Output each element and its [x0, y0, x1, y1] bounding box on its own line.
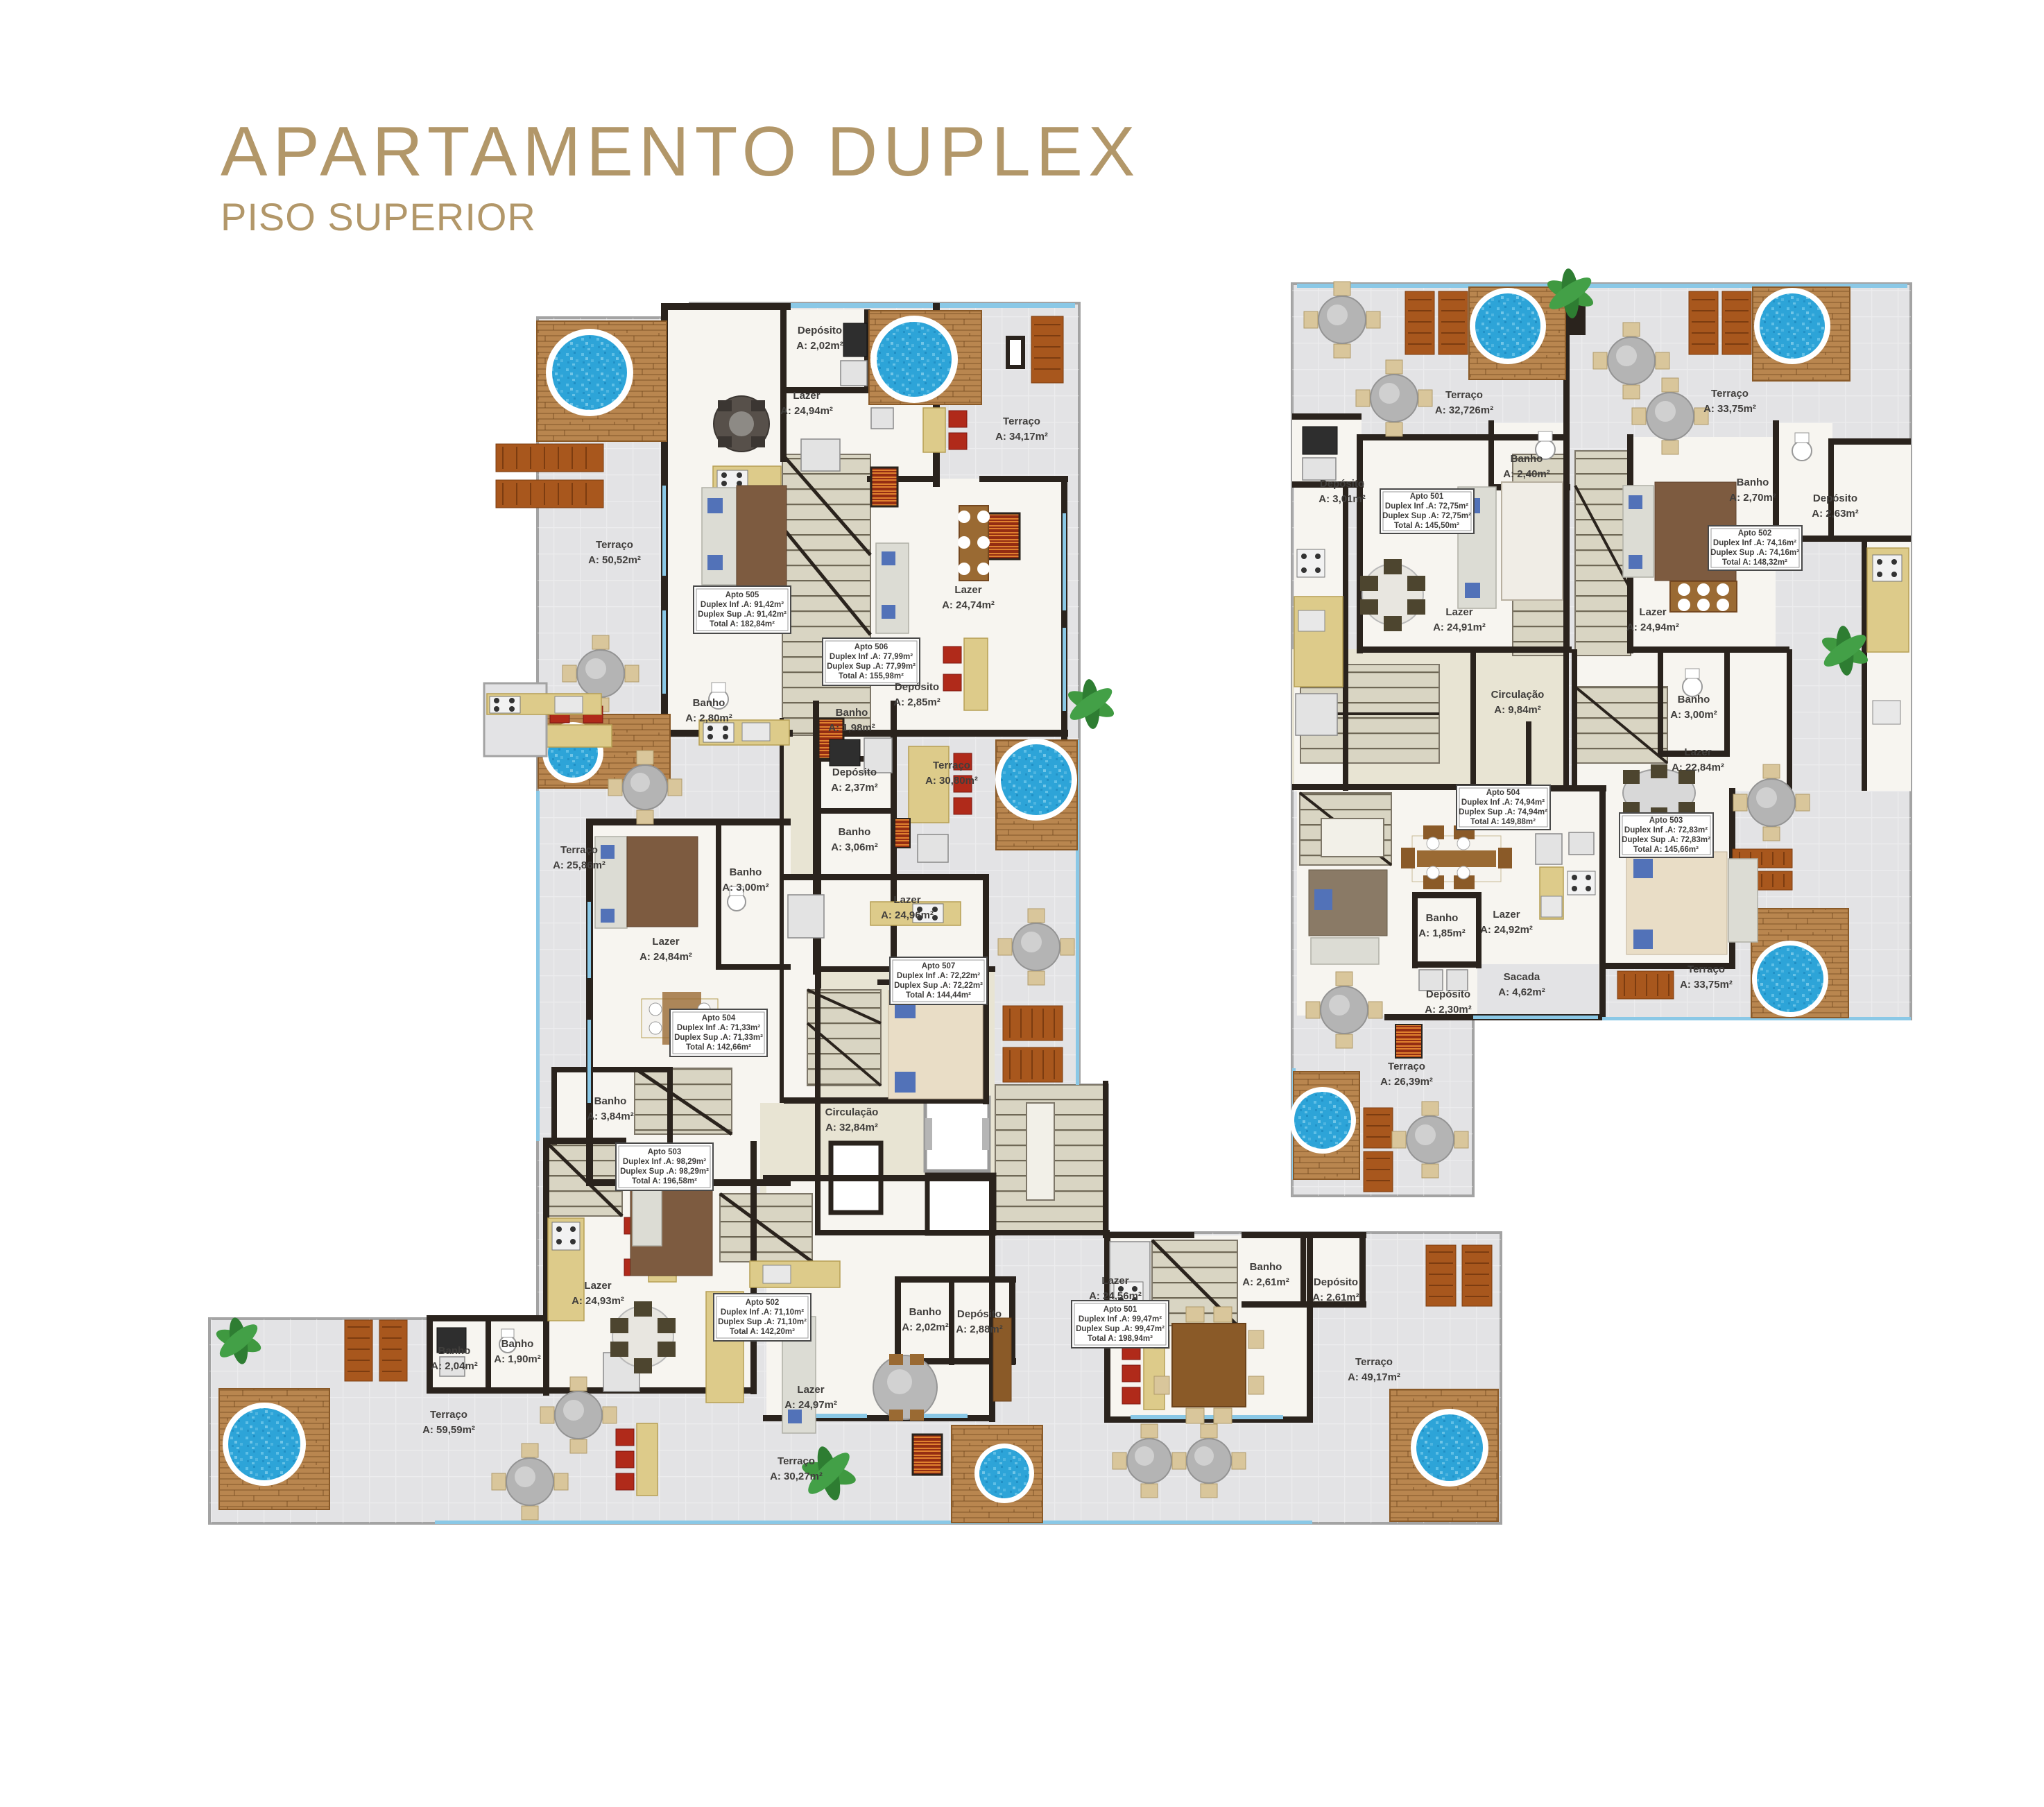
svg-text:Duplex Sup .A: 72,75m²: Duplex Sup .A: 72,75m² — [1382, 512, 1471, 520]
svg-text:Lazer: Lazer — [1684, 746, 1711, 758]
svg-text:Banho: Banho — [1250, 1261, 1282, 1273]
svg-text:Duplex Sup .A: 98,29m²: Duplex Sup .A: 98,29m² — [620, 1167, 709, 1176]
svg-text:Lazer: Lazer — [652, 936, 679, 948]
svg-text:Apto 501: Apto 501 — [1410, 493, 1444, 501]
svg-text:Banho: Banho — [594, 1095, 627, 1107]
svg-text:A: 26,39m²: A: 26,39m² — [1380, 1076, 1433, 1088]
svg-text:Banho: Banho — [438, 1345, 471, 1357]
svg-text:A: 24,97m²: A: 24,97m² — [784, 1399, 837, 1411]
svg-text:A: 30,27m²: A: 30,27m² — [770, 1471, 823, 1482]
svg-text:Banho: Banho — [1426, 912, 1459, 924]
svg-text:Total A: 155,98m²: Total A: 155,98m² — [839, 672, 904, 680]
svg-text:A: 24,96m²: A: 24,96m² — [881, 909, 934, 921]
svg-text:Apto 505: Apto 505 — [725, 591, 759, 599]
svg-text:PISO SUPERIOR: PISO SUPERIOR — [221, 195, 536, 239]
svg-text:Banho: Banho — [836, 707, 868, 719]
svg-text:Depósito: Depósito — [1426, 988, 1470, 1000]
svg-text:Total A: 148,32m²: Total A: 148,32m² — [1722, 558, 1787, 567]
svg-text:A: 2,04m²: A: 2,04m² — [431, 1360, 478, 1372]
svg-text:Duplex Inf .A: 71,33m²: Duplex Inf .A: 71,33m² — [677, 1024, 760, 1032]
svg-text:A: 2,37m²: A: 2,37m² — [831, 782, 878, 794]
svg-text:A: 33,75m²: A: 33,75m² — [1680, 979, 1733, 991]
svg-text:Banho: Banho — [501, 1338, 534, 1350]
svg-text:Lazer: Lazer — [584, 1280, 611, 1292]
svg-text:Duplex Inf .A: 72,22m²: Duplex Inf .A: 72,22m² — [897, 972, 980, 980]
svg-text:Apto 507: Apto 507 — [922, 962, 956, 970]
svg-text:Duplex Sup .A: 99,47m²: Duplex Sup .A: 99,47m² — [1076, 1325, 1165, 1333]
svg-text:A: 9,84m²: A: 9,84m² — [1494, 704, 1541, 716]
svg-text:Duplex Inf .A: 91,42m²: Duplex Inf .A: 91,42m² — [701, 601, 784, 609]
svg-text:Apto 501: Apto 501 — [1103, 1305, 1137, 1314]
svg-text:Total A: 198,94m²: Total A: 198,94m² — [1088, 1335, 1153, 1343]
svg-text:A: 30,80m²: A: 30,80m² — [925, 775, 978, 787]
svg-text:Total A: 196,58m²: Total A: 196,58m² — [632, 1177, 697, 1185]
svg-text:APARTAMENTO DUPLEX: APARTAMENTO DUPLEX — [221, 113, 1140, 191]
svg-text:Total A: 142,20m²: Total A: 142,20m² — [730, 1328, 795, 1336]
svg-text:A: 24,84m²: A: 24,84m² — [639, 951, 692, 963]
svg-text:A: 3,00m²: A: 3,00m² — [722, 882, 769, 893]
svg-text:A: 2,70m²: A: 2,70m² — [1729, 492, 1776, 504]
svg-text:Terraço: Terraço — [1003, 416, 1040, 427]
svg-text:Apto 503: Apto 503 — [648, 1148, 682, 1156]
svg-text:Duplex Inf .A: 99,47m²: Duplex Inf .A: 99,47m² — [1079, 1315, 1162, 1324]
svg-text:Total A: 145,50m²: Total A: 145,50m² — [1394, 522, 1459, 530]
svg-text:Banho: Banho — [1737, 477, 1769, 488]
svg-text:Terraço: Terraço — [560, 844, 598, 856]
svg-text:Total A: 144,44m²: Total A: 144,44m² — [906, 991, 971, 1000]
svg-text:A: 2,85m²: A: 2,85m² — [893, 696, 941, 708]
svg-text:A: 3,00m²: A: 3,00m² — [1670, 709, 1717, 721]
svg-text:Circulação: Circulação — [825, 1106, 879, 1118]
svg-text:Banho: Banho — [1678, 694, 1710, 705]
svg-text:Depósito: Depósito — [895, 681, 939, 693]
svg-text:A: 50,52m²: A: 50,52m² — [588, 554, 641, 566]
svg-text:A: 3,06m²: A: 3,06m² — [831, 841, 878, 853]
svg-text:Duplex Sup .A: 72,83m²: Duplex Sup .A: 72,83m² — [1622, 836, 1710, 844]
svg-text:Apto 503: Apto 503 — [1649, 816, 1683, 825]
svg-text:A: 24,91m²: A: 24,91m² — [1433, 622, 1486, 633]
svg-text:Circulação: Circulação — [1491, 689, 1545, 701]
svg-text:Terraço: Terraço — [1711, 388, 1749, 400]
svg-text:A: 49,17m²: A: 49,17m² — [1348, 1371, 1400, 1383]
svg-text:Banho: Banho — [693, 697, 725, 709]
svg-text:Total A: 142,66m²: Total A: 142,66m² — [686, 1043, 751, 1052]
svg-text:Banho: Banho — [839, 826, 871, 838]
svg-text:A: 1,85m²: A: 1,85m² — [1418, 927, 1466, 939]
svg-text:Apto 506: Apto 506 — [854, 643, 888, 651]
svg-text:Terraço: Terraço — [430, 1409, 467, 1421]
svg-text:Lazer: Lazer — [1445, 606, 1472, 618]
svg-text:A: 34,17m²: A: 34,17m² — [995, 431, 1048, 443]
svg-text:A: 22,84m²: A: 22,84m² — [1672, 762, 1724, 773]
svg-text:Lazer: Lazer — [1101, 1275, 1128, 1287]
svg-text:Duplex Sup .A: 77,99m²: Duplex Sup .A: 77,99m² — [827, 662, 916, 671]
svg-text:A: 24,92m²: A: 24,92m² — [1480, 924, 1533, 936]
svg-text:A: 2,30m²: A: 2,30m² — [1425, 1004, 1472, 1016]
svg-text:Terraço: Terraço — [1355, 1356, 1393, 1368]
svg-text:Duplex Sup .A: 74,16m²: Duplex Sup .A: 74,16m² — [1710, 549, 1799, 557]
svg-text:Duplex Inf .A: 74,16m²: Duplex Inf .A: 74,16m² — [1713, 539, 1796, 547]
svg-text:Sacada: Sacada — [1504, 971, 1540, 983]
svg-text:Terraço: Terraço — [778, 1455, 815, 1467]
svg-text:Depósito: Depósito — [1320, 478, 1364, 490]
svg-text:A: 3,01m²: A: 3,01m² — [1319, 493, 1366, 505]
svg-text:A: 24,93m²: A: 24,93m² — [572, 1295, 624, 1307]
svg-text:Total A: 149,88m²: Total A: 149,88m² — [1470, 818, 1536, 826]
svg-text:Duplex Inf .A: 71,10m²: Duplex Inf .A: 71,10m² — [721, 1308, 804, 1317]
svg-text:Depósito: Depósito — [798, 325, 842, 336]
svg-text:A: 24,94m²: A: 24,94m² — [780, 405, 833, 417]
svg-text:Apto 502: Apto 502 — [1738, 529, 1772, 538]
svg-text:Lazer: Lazer — [954, 584, 981, 596]
svg-text:Total A: 182,84m²: Total A: 182,84m² — [710, 620, 775, 628]
svg-text:Depósito: Depósito — [1813, 493, 1857, 504]
svg-text:A: 32,726m²: A: 32,726m² — [1435, 404, 1493, 416]
svg-text:A: 2,61m²: A: 2,61m² — [1312, 1292, 1359, 1303]
svg-text:Terraço: Terraço — [1388, 1061, 1425, 1072]
svg-text:Duplex Sup .A: 91,42m²: Duplex Sup .A: 91,42m² — [698, 610, 787, 619]
svg-text:Duplex Sup .A: 71,10m²: Duplex Sup .A: 71,10m² — [718, 1318, 807, 1326]
svg-text:Duplex Sup .A: 74,94m²: Duplex Sup .A: 74,94m² — [1459, 808, 1547, 816]
svg-text:Duplex Inf .A: 98,29m²: Duplex Inf .A: 98,29m² — [623, 1158, 706, 1166]
svg-text:A: 4,62m²: A: 4,62m² — [1498, 986, 1545, 998]
svg-text:Terraço: Terraço — [596, 539, 633, 551]
svg-text:Lazer: Lazer — [797, 1384, 824, 1396]
svg-text:Apto 502: Apto 502 — [746, 1299, 780, 1307]
svg-text:A: 33,75m²: A: 33,75m² — [1703, 403, 1756, 415]
svg-text:A: 3,84m²: A: 3,84m² — [587, 1111, 634, 1122]
svg-text:Lazer: Lazer — [893, 894, 920, 906]
svg-text:Depósito: Depósito — [1314, 1276, 1358, 1288]
svg-text:Duplex Inf .A: 74,94m²: Duplex Inf .A: 74,94m² — [1461, 798, 1545, 807]
svg-text:A: 24,74m²: A: 24,74m² — [942, 599, 995, 611]
svg-text:Lazer: Lazer — [1639, 606, 1666, 618]
svg-text:A: 25,86m²: A: 25,86m² — [553, 859, 606, 871]
svg-text:Terraço: Terraço — [1445, 389, 1483, 401]
svg-text:A: 2,80m²: A: 2,80m² — [685, 712, 732, 724]
svg-text:Banho: Banho — [730, 866, 762, 878]
svg-text:Banho: Banho — [1511, 453, 1543, 465]
svg-text:A: 2,61m²: A: 2,61m² — [1242, 1276, 1289, 1288]
svg-text:Duplex Sup .A: 72,22m²: Duplex Sup .A: 72,22m² — [894, 982, 983, 990]
svg-text:Depósito: Depósito — [832, 767, 877, 778]
svg-text:A: 1,90m²: A: 1,90m² — [494, 1353, 541, 1365]
svg-text:Lazer: Lazer — [793, 390, 820, 402]
svg-text:Terraço: Terraço — [933, 760, 970, 771]
svg-text:Lazer: Lazer — [1493, 909, 1520, 920]
svg-text:A: 2,63m²: A: 2,63m² — [1812, 508, 1859, 520]
svg-text:Duplex Inf .A: 72,75m²: Duplex Inf .A: 72,75m² — [1385, 502, 1468, 511]
svg-text:Apto 504: Apto 504 — [1486, 789, 1520, 797]
svg-text:Terraço: Terraço — [1687, 964, 1725, 975]
svg-text:Duplex Inf .A: 72,83m²: Duplex Inf .A: 72,83m² — [1624, 826, 1708, 834]
svg-text:A: 2,02m²: A: 2,02m² — [796, 340, 843, 352]
svg-text:A: 24,94m²: A: 24,94m² — [1626, 622, 1679, 633]
svg-text:Duplex Inf .A: 77,99m²: Duplex Inf .A: 77,99m² — [830, 653, 913, 661]
svg-text:A: 32,84m²: A: 32,84m² — [825, 1122, 878, 1133]
svg-text:A: 2,40m²: A: 2,40m² — [1503, 468, 1550, 480]
svg-text:Banho: Banho — [909, 1306, 942, 1318]
svg-text:Total A: 145,66m²: Total A: 145,66m² — [1633, 846, 1699, 854]
svg-text:Apto 504: Apto 504 — [702, 1014, 736, 1022]
svg-text:Duplex Sup .A: 71,33m²: Duplex Sup .A: 71,33m² — [674, 1034, 763, 1042]
svg-text:A: 2,88m²: A: 2,88m² — [956, 1324, 1003, 1335]
svg-text:A: 1,98m²: A: 1,98m² — [828, 722, 875, 734]
svg-text:Depósito: Depósito — [957, 1308, 1002, 1320]
svg-text:A: 59,59m²: A: 59,59m² — [422, 1424, 475, 1436]
svg-text:A: 2,02m²: A: 2,02m² — [902, 1321, 949, 1333]
